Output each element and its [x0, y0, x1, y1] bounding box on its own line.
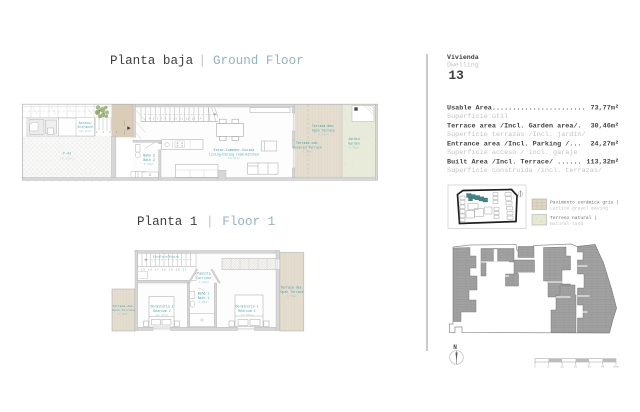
svg-text:9,76m²: 9,76m²: [349, 147, 360, 150]
svg-text:1 2 3 4: 1 2 3 4: [96, 131, 119, 134]
svg-text:11,91m²: 11,91m²: [241, 314, 254, 317]
svg-text:Terraza des.: Terraza des.: [312, 124, 335, 128]
svg-text:Dormitorio 2: Dormitorio 2: [151, 305, 174, 309]
svg-text:Superficie construida /incl. t: Superficie construida /incl. terrazas/: [447, 167, 602, 175]
svg-text:Superficie terrazas /Incl. jar: Superficie terrazas /Incl. jardín/: [447, 131, 586, 139]
svg-text:Escalera/Stairs: Escalera/Stairs: [153, 255, 179, 259]
svg-text:P-42: P-42: [63, 153, 72, 157]
svg-text:Floor 1: Floor 1: [222, 215, 275, 229]
svg-text:Terrace area /Incl. Garden are: Terrace area /Incl. Garden area/.: [447, 123, 582, 131]
svg-text:13: 13: [449, 68, 465, 83]
svg-text:|: |: [206, 215, 214, 229]
svg-text:Usable Area...................: Usable Area.......................: [447, 105, 586, 113]
svg-text:Garden: Garden: [348, 141, 360, 145]
svg-text:33,97m²: 33,97m²: [228, 157, 241, 160]
svg-text:Pasillo: Pasillo: [197, 272, 210, 276]
svg-text:|: |: [199, 54, 207, 68]
svg-text:Terreno natural |: Terreno natural |: [550, 215, 597, 221]
svg-text:Bedroom 1: Bedroom 1: [238, 309, 255, 313]
svg-text:Ground Floor: Ground Floor: [213, 54, 304, 68]
svg-text:15 16 17 18 19 20 21: 15 16 17 18 19 20 21: [141, 269, 187, 272]
svg-text:5,38m²: 5,38m²: [302, 151, 313, 154]
svg-text:Terraza des.: Terraza des.: [281, 286, 304, 290]
svg-text:30,46m²: 30,46m²: [590, 123, 619, 131]
svg-text:Open Terrace: Open Terrace: [281, 290, 304, 294]
svg-text:Pavimento cerámica gris |: Pavimento cerámica gris |: [550, 200, 619, 206]
svg-text:7,08m²: 7,08m²: [199, 281, 210, 284]
svg-text:40: 40: [601, 366, 605, 369]
svg-text:113,32m²: 113,32m²: [586, 159, 619, 167]
svg-text:Vivienda: Vivienda: [447, 54, 479, 61]
svg-text:Bath 2: Bath 2: [143, 158, 155, 162]
svg-text:Open Terrace: Open Terrace: [112, 308, 134, 312]
svg-text:2 4 5 6 7 8 9 10 11 12 13 14: 2 4 5 6 7 8 9 10 11 12 13 14: [145, 118, 203, 121]
svg-text:Corridor: Corridor: [196, 276, 211, 280]
svg-text:N: N: [453, 344, 457, 351]
svg-text:9,74m²: 9,74m²: [318, 134, 329, 137]
svg-text:3,05m²: 3,05m²: [144, 163, 155, 166]
svg-text:Open Terrace: Open Terrace: [312, 128, 335, 132]
svg-text:Entrance: Entrance: [78, 125, 93, 129]
svg-text:Lattice gravel paving: Lattice gravel paving: [550, 205, 608, 211]
svg-text:10,17m²: 10,17m²: [156, 314, 169, 317]
svg-text:Dormitorio 1: Dormitorio 1: [236, 305, 259, 309]
svg-text:Natural land: Natural land: [550, 221, 583, 227]
svg-text:24,27m²: 24,27m²: [590, 141, 619, 149]
svg-text:Planta baja: Planta baja: [110, 54, 194, 68]
svg-text:Superficie acceso / incl. gara: Superficie acceso / incl. garaje: [447, 149, 578, 157]
svg-text:50m: 50m: [613, 366, 618, 369]
svg-text:Terraza cub.: Terraza cub.: [296, 141, 319, 145]
svg-text:3,85m²: 3,85m²: [198, 301, 209, 304]
svg-text:Entrance area /Incl. Parking /: Entrance area /Incl. Parking /...: [447, 141, 582, 149]
svg-text:7,06m²: 7,06m²: [118, 313, 129, 316]
svg-text:Planta 1: Planta 1: [137, 215, 197, 229]
svg-text:Covered Terrace: Covered Terrace: [293, 145, 322, 149]
svg-text:Bedroom 2: Bedroom 2: [153, 309, 170, 313]
svg-text:Bath 1: Bath 1: [198, 296, 210, 300]
svg-text:20: 20: [574, 366, 578, 369]
svg-text:10: 10: [560, 366, 564, 369]
svg-text:73,77m²: 73,77m²: [590, 105, 619, 113]
svg-text:30: 30: [587, 366, 591, 369]
svg-text:Superficie útil: Superficie útil: [447, 113, 508, 121]
svg-text:Built Area /Incl. Terrace/ ...: Built Area /Incl. Terrace/ ......: [447, 159, 582, 167]
svg-text:(4,17m²): (4,17m²): [60, 156, 74, 160]
svg-text:Baño 1: Baño 1: [198, 292, 210, 296]
svg-text:12,17m²: 12,17m²: [79, 130, 92, 133]
svg-text:Living-Dining room-Kitchen: Living-Dining room-Kitchen: [209, 152, 259, 156]
svg-text:Jardín: Jardín: [348, 137, 360, 141]
svg-text:7,76m²: 7,76m²: [287, 295, 298, 298]
